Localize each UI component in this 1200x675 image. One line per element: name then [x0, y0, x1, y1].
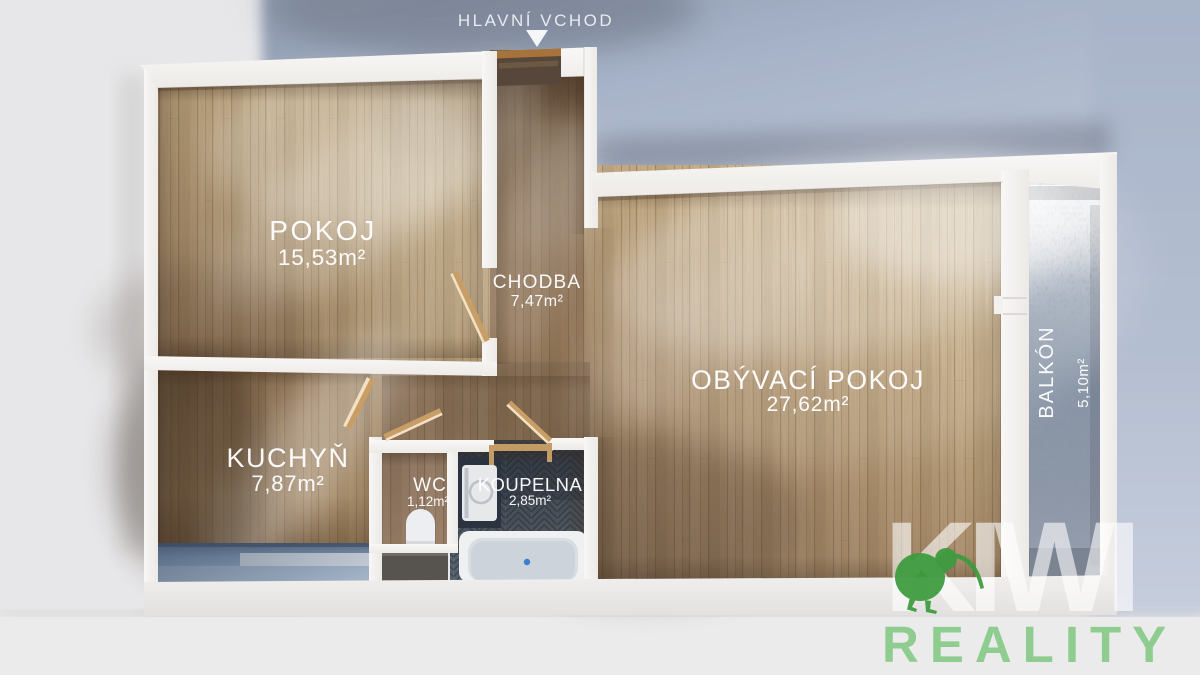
svg-text:BALKÓN: BALKÓN: [1035, 325, 1058, 418]
svg-text:CHODBA: CHODBA: [493, 272, 582, 293]
svg-text:2,85m²: 2,85m²: [509, 493, 552, 508]
svg-text:7,87m²: 7,87m²: [251, 471, 324, 496]
svg-text:KOUPELNA: KOUPELNA: [478, 474, 583, 495]
svg-text:REALITY: REALITY: [882, 616, 1177, 673]
svg-text:1,12m²: 1,12m²: [407, 494, 450, 509]
svg-text:HLAVNÍ VCHOD: HLAVNÍ VCHOD: [458, 11, 614, 30]
svg-text:15,53m²: 15,53m²: [278, 245, 366, 270]
svg-text:WC: WC: [413, 475, 447, 496]
svg-text:5,10m²: 5,10m²: [1075, 358, 1092, 408]
svg-text:POKOJ: POKOJ: [269, 215, 376, 246]
svg-text:KUCHYŇ: KUCHYŇ: [226, 442, 349, 473]
svg-text:27,62m²: 27,62m²: [767, 393, 850, 416]
svg-text:7,47m²: 7,47m²: [511, 293, 564, 310]
svg-text:OBÝVACÍ POKOJ: OBÝVACÍ POKOJ: [691, 365, 925, 395]
